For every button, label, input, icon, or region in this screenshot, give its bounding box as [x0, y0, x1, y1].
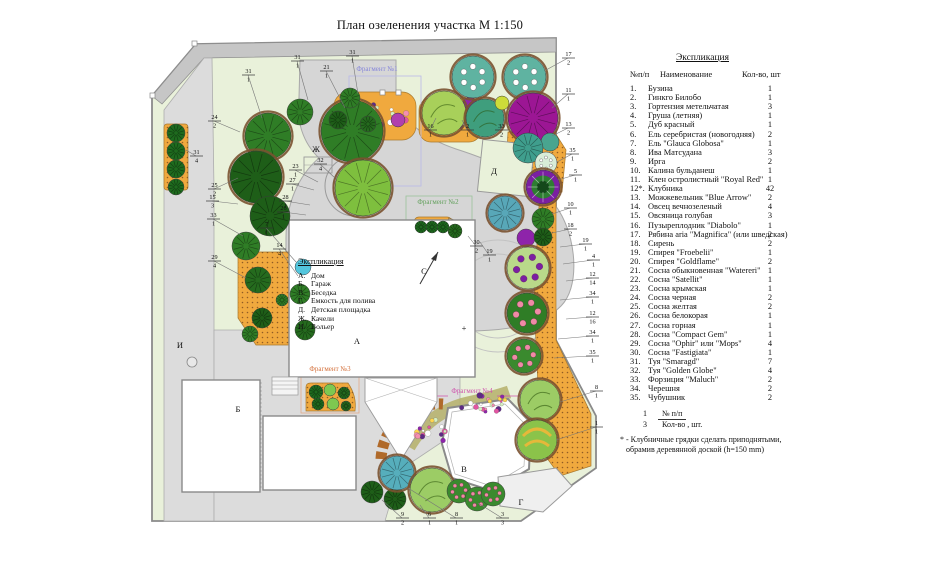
tree: [426, 221, 438, 233]
svg-text:4: 4: [278, 251, 281, 258]
fence-post: [396, 90, 401, 95]
legend-item-name: Черешня: [648, 384, 680, 393]
svg-text:30: 30: [473, 239, 479, 246]
legend-item-num: 6.: [630, 130, 636, 139]
legend-row: 25.Сосна желтая2: [620, 302, 865, 311]
svg-text:10: 10: [567, 201, 573, 208]
legend-row: 33.Форзиция "Maluch"2: [620, 375, 865, 384]
legend-item-name: Спирея "Goldflame": [648, 257, 719, 266]
area-label: А: [354, 336, 361, 346]
fragment-label: Фрагмент №3: [309, 365, 351, 373]
svg-text:13: 13: [565, 121, 571, 128]
legend-row: 4.Груша (летняя)1: [620, 111, 865, 120]
tree: [229, 150, 284, 205]
legend-item-name: Спирея "Froebelii": [648, 248, 713, 257]
legend-row: 34.Черешня2: [620, 384, 865, 393]
area-label: Г: [519, 497, 524, 507]
tree: [338, 387, 350, 399]
legend-row: 32.Туя "Golden Globe"4: [620, 366, 865, 375]
legend-item-num: 14.: [630, 202, 640, 211]
legend-row: 21.Сосна обыкновенная "Watereri"1: [620, 266, 865, 275]
legend-item-name: Сосна обыкновенная "Watereri": [648, 266, 761, 275]
svg-text:21: 21: [323, 64, 329, 71]
legend-item-qty: 1: [760, 330, 780, 339]
svg-text:4: 4: [319, 166, 322, 173]
svg-text:4: 4: [195, 158, 198, 165]
legend-item-qty: 2: [760, 157, 780, 166]
legend-item-qty: 1: [760, 311, 780, 320]
legend-row: 17.Рябина aria "Magnifica" (или шведская…: [620, 230, 865, 239]
legend-item-num: 24.: [630, 293, 640, 302]
svg-text:16: 16: [589, 319, 595, 326]
svg-text:1: 1: [466, 132, 469, 139]
legend-item-name: Бузина: [648, 84, 673, 93]
svg-text:1: 1: [265, 230, 268, 237]
legend-item-num: 5.: [630, 120, 636, 129]
callout-key: 1№ п/п 3Кол-во , шт.: [638, 409, 865, 429]
legend-row: 5.Дуб красный1: [620, 120, 865, 129]
area-label: Д: [491, 166, 497, 176]
svg-text:1: 1: [592, 262, 595, 269]
legend-row: 27.Сосна горная1: [620, 321, 865, 330]
legend-item-name: Ива Матсудана: [648, 148, 702, 157]
legend-item-qty: 1: [760, 166, 780, 175]
legend-row: 9.Ирга2: [620, 157, 865, 166]
svg-text:34: 34: [589, 329, 595, 336]
legend-item-num: 10.: [630, 166, 640, 175]
tree: [391, 113, 405, 127]
legend-item-num: 25.: [630, 302, 640, 311]
legend-item-qty: 2: [760, 302, 780, 311]
legend-title: Экспликация: [620, 54, 785, 63]
legend-item-name: Форзиция "Maluch": [648, 375, 718, 384]
legend-row: 3.Гортензия метельчатая3: [620, 102, 865, 111]
fence-post: [150, 93, 155, 98]
svg-text:2: 2: [213, 123, 216, 130]
aviary-post: [187, 357, 197, 367]
legend-item-num: 30.: [630, 348, 640, 357]
svg-text:32: 32: [317, 157, 323, 164]
plan-key-row: И.Вольер: [298, 323, 418, 332]
legend-item-qty: 1: [760, 120, 780, 129]
tree: [541, 133, 559, 151]
flower-dot: [503, 398, 507, 402]
legend-row: 18.Сирень2: [620, 239, 865, 248]
legend-item-name: Овсяница голубая: [648, 211, 712, 220]
legend-item-num: 33.: [630, 375, 640, 384]
area-label: Б: [236, 404, 241, 414]
legend-row: 35.Чубушник2: [620, 393, 865, 402]
svg-text:7: 7: [265, 221, 268, 228]
legend-item-qty: 1: [760, 175, 780, 184]
tree: [448, 224, 462, 238]
legend-row: 31.Туя "Smaragd"7: [620, 357, 865, 366]
callout-key-bottom-label: Кол-во , шт.: [658, 420, 706, 430]
legend-item-num: 32.: [630, 366, 640, 375]
svg-text:1: 1: [428, 520, 431, 527]
svg-text:2: 2: [567, 60, 570, 67]
svg-text:14: 14: [589, 280, 595, 287]
svg-text:1: 1: [584, 246, 587, 253]
legend-row: 6.Ель серебристая (новогодняя)2: [620, 130, 865, 139]
legend-item-name: Ель "Glauca Globosa": [648, 139, 724, 148]
legend-item-qty: 2: [760, 230, 780, 239]
tree: [481, 482, 505, 506]
legend-item-num: 31.: [630, 357, 640, 366]
annex: [263, 416, 356, 490]
flower-dot: [479, 407, 483, 411]
svg-text:1: 1: [574, 177, 577, 184]
plan-key-label: Вольер: [311, 322, 334, 331]
legend-item-num: 34.: [630, 384, 640, 393]
svg-text:4: 4: [213, 263, 216, 270]
legend-row: 30.Сосна "Fastigiata"1: [620, 348, 865, 357]
legend-row: 8.Ива Матсудана3: [620, 148, 865, 157]
svg-text:11: 11: [566, 87, 572, 94]
svg-text:33: 33: [498, 123, 504, 130]
flower-dot: [440, 425, 444, 429]
legend-item-qty: 2: [760, 393, 780, 402]
svg-text:8: 8: [455, 511, 458, 518]
legend-item-name: Груша (летняя): [648, 111, 702, 120]
legend-item-name: Калина бульданеш: [648, 166, 715, 175]
tree: [360, 116, 376, 132]
callout-key-top-label: № п/п: [658, 409, 686, 420]
legend-item-qty: 1: [760, 284, 780, 293]
svg-text:1: 1: [488, 257, 491, 264]
tree: [506, 292, 549, 335]
flower-dot: [500, 395, 504, 399]
svg-text:2: 2: [500, 132, 503, 139]
tree: [324, 384, 336, 396]
legend-panel: Экспликация №п/п Наименование Кол-во, шт…: [620, 54, 865, 455]
svg-text:1: 1: [595, 420, 598, 427]
legend-col-num: №п/п: [630, 70, 649, 79]
svg-text:31: 31: [193, 149, 199, 156]
svg-text:1: 1: [455, 520, 458, 527]
svg-text:1: 1: [595, 429, 598, 436]
legend-item-name: Сосна "Ophir" или "Mops": [648, 339, 742, 348]
svg-text:31: 31: [245, 68, 251, 75]
legend-item-name: Сосна крымская: [648, 284, 706, 293]
svg-text:1: 1: [569, 210, 572, 217]
legend-item-num: 17.: [630, 230, 640, 239]
legend-row: 1.Бузина1: [620, 84, 865, 93]
legend-item-name: Сирень: [648, 239, 674, 248]
legend-item-name: Сосна "Fastigiata": [648, 348, 711, 357]
tree: [334, 159, 393, 218]
legend-item-qty: 1: [760, 139, 780, 148]
tree: [437, 221, 449, 233]
svg-text:3: 3: [211, 203, 214, 210]
legend-item-name: Гинкго Билобо: [648, 93, 701, 102]
svg-text:3: 3: [501, 511, 504, 518]
svg-text:23: 23: [292, 163, 298, 170]
svg-text:6: 6: [428, 511, 431, 518]
svg-text:2: 2: [569, 231, 572, 238]
tree: [534, 228, 552, 246]
strawberry-note-line1: * - Клубничные грядки сделать приподняты…: [620, 435, 865, 445]
steps: [272, 377, 298, 395]
tree: [327, 398, 339, 410]
legend-item-qty: 2: [760, 130, 780, 139]
tree: [487, 195, 524, 232]
legend-row: 28.Сосна "Compact Gem"1: [620, 330, 865, 339]
svg-text:8: 8: [595, 384, 598, 391]
svg-text:25: 25: [211, 182, 217, 189]
tree: [519, 379, 562, 422]
flower-dot: [428, 426, 431, 429]
svg-text:16: 16: [427, 123, 433, 130]
fragment-label: Фрагмент №2: [417, 198, 459, 206]
fragment-label: Фрагмент №4: [451, 387, 493, 395]
tree: [517, 229, 535, 247]
legend-item-num: 8.: [630, 148, 636, 157]
tree: [361, 481, 383, 503]
svg-text:31: 31: [349, 49, 355, 56]
tree: [232, 232, 260, 260]
svg-text:27: 27: [289, 177, 295, 184]
flower-dot: [418, 427, 422, 431]
tree: [252, 308, 272, 328]
legend-item-num: 16.: [630, 221, 640, 230]
svg-text:1: 1: [291, 186, 294, 193]
svg-text:1: 1: [247, 77, 250, 84]
legend-col-qty: Кол-во, шт: [742, 70, 781, 79]
flower-dot: [390, 108, 393, 111]
svg-text:35: 35: [569, 147, 575, 154]
svg-text:2: 2: [567, 130, 570, 137]
svg-text:1: 1: [591, 338, 594, 345]
legend-item-num: 21.: [630, 266, 640, 275]
legend-item-num: 1.: [630, 84, 636, 93]
garage: [182, 380, 260, 492]
legend-item-qty: 2: [760, 193, 780, 202]
legend-item-num: 29.: [630, 339, 640, 348]
flower-dot: [441, 438, 446, 443]
legend-row: 19.Спирея "Froebelii"1: [620, 248, 865, 257]
fragment-label: Фрагмент №1: [356, 65, 398, 73]
legend-item-num: 28.: [630, 330, 640, 339]
flower-dot: [473, 404, 478, 409]
fence-post: [192, 41, 197, 46]
legend-row: 14.Овсец вечнозеленый4: [620, 202, 865, 211]
legend-item-num: 9.: [630, 157, 636, 166]
page: План озеленения участка М 1:150: [0, 0, 940, 561]
svg-text:4: 4: [592, 253, 595, 260]
legend-row: 12*.Клубника42: [620, 184, 865, 193]
legend-item-num: 22.: [630, 275, 640, 284]
plant-callout: 341: [558, 329, 599, 345]
svg-text:1: 1: [567, 96, 570, 103]
strawberry-note: * - Клубничные грядки сделать приподняты…: [620, 435, 865, 455]
legend-row: 24.Сосна черная2: [620, 293, 865, 302]
legend-item-name: Ирга: [648, 157, 665, 166]
plant-callout: 1216: [566, 310, 599, 326]
fence-post: [380, 90, 385, 95]
flower-dot: [430, 418, 434, 422]
flower-dot: [494, 409, 499, 414]
svg-text:3: 3: [501, 520, 504, 527]
legend-item-name: Можжевельник "Blue Arrow": [648, 193, 751, 202]
area-label: Ж: [312, 144, 320, 154]
legend-col-name: Наименование: [660, 70, 712, 79]
legend-item-name: Туя "Smaragd": [648, 357, 699, 366]
legend-item-qty: 1: [760, 321, 780, 330]
tree: [506, 338, 543, 375]
svg-text:14: 14: [276, 242, 282, 249]
legend-item-qty: 1: [760, 275, 780, 284]
legend-item-name: Гортензия метельчатая: [648, 102, 729, 111]
legend-item-name: Ель серебристая (новогодняя): [648, 130, 755, 139]
svg-text:12: 12: [589, 271, 595, 278]
legend-item-name: Дуб красный: [648, 120, 694, 129]
tree: [341, 401, 351, 411]
legend-item-num: 13.: [630, 193, 640, 202]
legend-item-num: 4.: [630, 111, 636, 120]
svg-text:2: 2: [466, 123, 469, 130]
legend-header: №п/п Наименование Кол-во, шт: [620, 70, 865, 84]
flower-dot: [439, 432, 443, 436]
svg-text:34: 34: [589, 290, 595, 297]
area-label: +: [462, 323, 467, 333]
legend-item-qty: 4: [760, 339, 780, 348]
tree: [287, 99, 313, 125]
tree: [309, 385, 323, 399]
flower-dot: [425, 430, 431, 436]
legend-item-qty: 1: [760, 266, 780, 275]
legend-item-name: Сосна горная: [648, 321, 696, 330]
legend-item-name: Клубника: [648, 184, 683, 193]
svg-text:12: 12: [589, 310, 595, 317]
callout-key-bottom-num: 3: [638, 420, 652, 430]
svg-text:1: 1: [212, 221, 215, 228]
legend-item-name: Чубушник: [648, 393, 685, 402]
area-label: И: [177, 340, 183, 350]
area-label: В: [461, 464, 467, 474]
svg-text:35: 35: [589, 349, 595, 356]
legend-item-name: Сосна "Satellit": [648, 275, 703, 284]
legend-row: 23.Сосна крымская1: [620, 284, 865, 293]
tree: [340, 88, 360, 108]
legend-row: 22.Сосна "Satellit"1: [620, 275, 865, 284]
legend-item-num: 7.: [630, 139, 636, 148]
legend-item-num: 20.: [630, 257, 640, 266]
svg-text:1: 1: [429, 132, 432, 139]
legend-row: 10.Калина бульданеш1: [620, 166, 865, 175]
flower-dot: [492, 404, 495, 407]
tree: [242, 326, 258, 342]
flower-dot: [459, 405, 464, 410]
legend-item-num: 19.: [630, 248, 640, 257]
legend-row: 29.Сосна "Ophir" или "Mops"4: [620, 339, 865, 348]
svg-text:17: 17: [565, 51, 571, 58]
callout-key-top-num: 1: [638, 409, 652, 419]
plan-key: Экспликация А.ДомБ.ГаражВ.БеседкаГ.Емкос…: [298, 258, 418, 332]
flower-dot: [415, 434, 420, 439]
legend-item-qty: 2: [760, 384, 780, 393]
legend-item-name: Клен остролистный "Royal Red": [648, 175, 763, 184]
flower-dot: [488, 399, 492, 403]
svg-text:5: 5: [574, 168, 577, 175]
legend-item-num: 35.: [630, 393, 640, 402]
tree: [167, 124, 185, 142]
legend-item-name: Туя "Golden Globe": [648, 366, 717, 375]
plan-key-list: А.ДомБ.ГаражВ.БеседкаГ.Емкость для полив…: [298, 272, 418, 332]
legend-item-num: 23.: [630, 284, 640, 293]
legend-row: 16.Пузыреплодник "Diabolo"1: [620, 221, 865, 230]
flower-dot: [403, 111, 409, 117]
legend-item-name: Овсец вечнозеленый: [648, 202, 722, 211]
tree: [167, 160, 185, 178]
svg-text:1: 1: [591, 358, 594, 365]
svg-text:1: 1: [571, 156, 574, 163]
tree: [495, 96, 509, 110]
legend-item-name: Пузыреплодник "Diabolo": [648, 221, 741, 230]
legend-item-num: 12*.: [630, 184, 645, 193]
legend-row: 26.Сосна белокорая1: [620, 311, 865, 320]
legend-item-name: Сосна белокорая: [648, 311, 708, 320]
flower-dot: [422, 429, 424, 431]
legend-item-qty: 2: [760, 239, 780, 248]
tree: [415, 221, 427, 233]
svg-text:2: 2: [475, 248, 478, 255]
tree: [168, 179, 184, 195]
tree: [320, 99, 385, 164]
plan-key-title: Экспликация: [298, 258, 418, 267]
svg-text:26: 26: [280, 205, 286, 212]
flower-dot: [500, 403, 503, 406]
plan-key-letter: И.: [298, 323, 311, 332]
legend-item-qty: 1: [760, 93, 780, 102]
legend-item-qty: 3: [760, 148, 780, 157]
svg-text:1: 1: [595, 393, 598, 400]
legend-item-qty: 2: [760, 293, 780, 302]
legend-item-qty: 7: [760, 357, 780, 366]
legend-item-qty: 2: [760, 257, 780, 266]
legend-item-name: Сосна "Compact Gem": [648, 330, 727, 339]
legend-item-name: Сосна желтая: [648, 302, 697, 311]
svg-text:2: 2: [401, 520, 404, 527]
legend-item-num: 27.: [630, 321, 640, 330]
legend-item-name: Сосна черная: [648, 293, 696, 302]
tree: [525, 169, 562, 206]
svg-text:18: 18: [567, 222, 573, 229]
flower-dot: [468, 401, 473, 406]
legend-row: 11.Клен остролистный "Royal Red"1: [620, 175, 865, 184]
svg-text:19: 19: [582, 237, 588, 244]
tree: [532, 208, 554, 230]
legend-item-qty: 1: [760, 348, 780, 357]
flower-dot: [443, 430, 446, 433]
legend-item-qty: 3: [760, 211, 780, 220]
legend-row: 15.Овсяница голубая3: [620, 211, 865, 220]
svg-text:28: 28: [282, 194, 288, 201]
legend-item-num: 26.: [630, 311, 640, 320]
legend-item-num: 18.: [630, 239, 640, 248]
svg-text:1: 1: [296, 63, 299, 70]
tree: [329, 111, 347, 129]
legend-row: 7.Ель "Glauca Globosa"1: [620, 139, 865, 148]
svg-text:1: 1: [591, 299, 594, 306]
legend-item-num: 2.: [630, 93, 636, 102]
legend-row: 20.Спирея "Goldflame"2: [620, 257, 865, 266]
legend-item-num: 11.: [630, 175, 640, 184]
svg-text:29: 29: [211, 254, 217, 261]
legend-item-qty: 1: [760, 248, 780, 257]
legend-item-qty: 2: [760, 375, 780, 384]
legend-item-num: 15.: [630, 211, 640, 220]
